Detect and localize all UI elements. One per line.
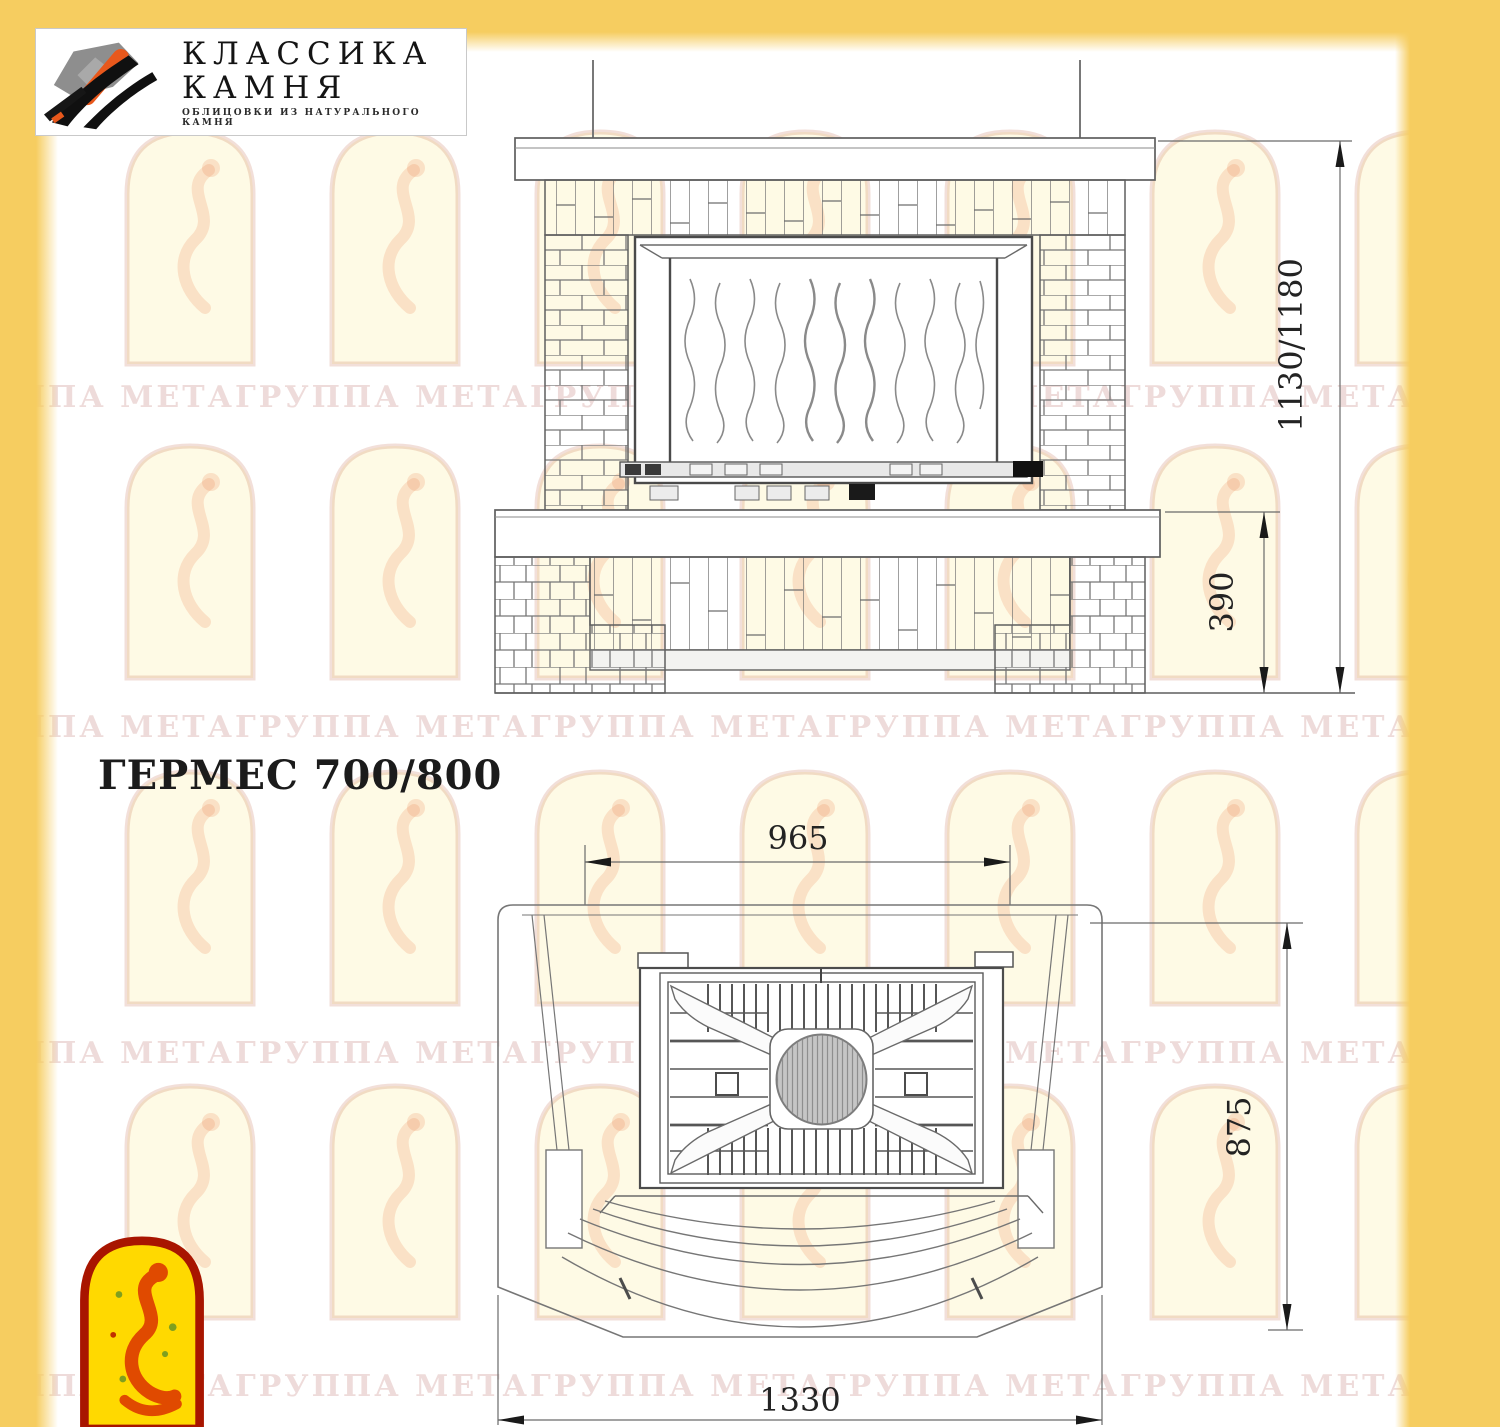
brick-column-right bbox=[1040, 235, 1125, 510]
company-logo: КЛАССИКА КАМНЯ ОБЛИЦОВКИ ИЗ НАТУРАЛЬНОГО… bbox=[35, 28, 467, 136]
front-arcs bbox=[562, 1201, 1038, 1327]
overall-width-dim-label: 1330 bbox=[759, 1381, 840, 1419]
firebox-feet bbox=[650, 484, 875, 500]
plinth-dim-label: 390 bbox=[1203, 571, 1241, 632]
page-root: ГРУППА МЕТАГРУППА МЕТАГРУППА МЕТАГРУППА … bbox=[0, 0, 1500, 1427]
stone-brush-logo-icon bbox=[44, 35, 172, 130]
logo-title-line2: КАМНЯ bbox=[182, 71, 466, 105]
flue-outlet bbox=[770, 1029, 873, 1129]
height-dim-label: 1130/1180 bbox=[1272, 258, 1310, 432]
brick-column-left bbox=[545, 235, 628, 510]
insert-front-band bbox=[600, 1196, 1043, 1213]
logo-tagline: ОБЛИЦОВКИ ИЗ НАТУРАЛЬНОГО КАМНЯ bbox=[182, 108, 466, 128]
hearth-shelf bbox=[495, 510, 1160, 557]
logo-title-line1: КЛАССИКА bbox=[182, 37, 466, 71]
dimension-depth bbox=[1090, 923, 1303, 1330]
chimney-lines bbox=[593, 60, 1080, 138]
width-top-dim-label: 965 bbox=[767, 819, 828, 857]
upper-tile-frieze bbox=[545, 180, 1125, 235]
depth-dim-label: 875 bbox=[1220, 1096, 1258, 1157]
front-elevation-drawing: 1130/1180 390 bbox=[480, 55, 1360, 705]
mantel-shelf bbox=[515, 138, 1155, 180]
insert-knob-right bbox=[905, 1073, 927, 1095]
grate-strip bbox=[620, 461, 1043, 477]
meta-group-logo bbox=[78, 1235, 206, 1427]
firebox bbox=[620, 237, 1043, 500]
dimension-height bbox=[1158, 141, 1352, 693]
top-view-drawing: 965 bbox=[450, 805, 1330, 1427]
firebox-insert-plan bbox=[600, 952, 1043, 1213]
insert-knob-left bbox=[716, 1073, 738, 1095]
model-title: ГЕРМЕС 700/800 bbox=[98, 752, 502, 799]
